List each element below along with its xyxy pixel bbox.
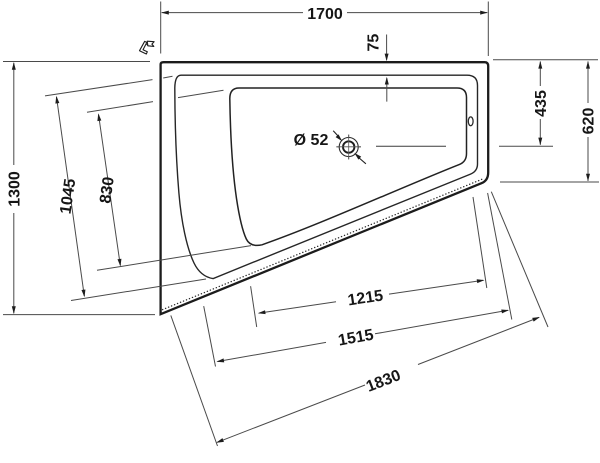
svg-text:1700: 1700 — [307, 6, 343, 23]
svg-text:1300: 1300 — [6, 171, 23, 207]
svg-text:75: 75 — [366, 34, 383, 52]
svg-text:620: 620 — [581, 108, 598, 135]
svg-text:435: 435 — [533, 90, 550, 117]
svg-text:Ø 52: Ø 52 — [294, 132, 329, 149]
